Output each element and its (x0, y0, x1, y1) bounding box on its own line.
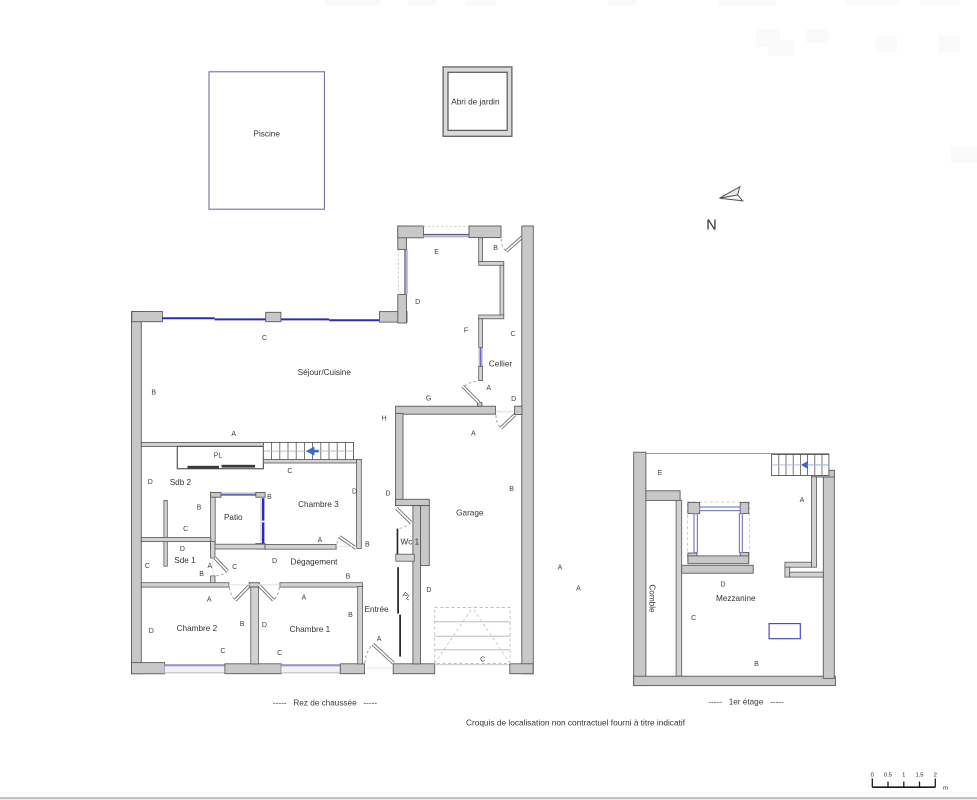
svg-text:B: B (151, 390, 156, 397)
svg-text:Sdb 2: Sdb 2 (170, 478, 192, 487)
svg-text:A: A (231, 431, 236, 438)
svg-text:Dégagement: Dégagement (291, 558, 339, 567)
svg-text:B: B (267, 494, 272, 501)
svg-text:A: A (558, 565, 563, 572)
svg-text:B: B (509, 486, 514, 493)
svg-text:D: D (511, 396, 516, 403)
svg-text:A: A (302, 595, 307, 602)
svg-text:----- 1er étage -----: ----- 1er étage ----- (708, 697, 784, 706)
svg-text:A: A (318, 537, 323, 544)
svg-text:Garage: Garage (456, 508, 484, 517)
svg-text:D: D (262, 622, 267, 629)
svg-text:N: N (706, 218, 716, 234)
svg-text:A: A (800, 497, 805, 504)
svg-text:D: D (149, 628, 154, 635)
svg-text:Chambre 1: Chambre 1 (290, 625, 331, 634)
svg-text:A: A (471, 431, 476, 438)
svg-text:C: C (232, 564, 237, 571)
svg-text:C: C (287, 468, 292, 475)
svg-text:Wc 1: Wc 1 (400, 537, 419, 546)
svg-text:----- Rez de chaussée ----: ----- Rez de chaussée ----- (273, 698, 377, 707)
svg-text:D: D (720, 582, 725, 589)
svg-text:E: E (434, 249, 439, 256)
svg-text:A: A (207, 563, 212, 570)
svg-text:B: B (754, 661, 759, 668)
svg-text:Séjour/Cuisine: Séjour/Cuisine (298, 368, 352, 377)
svg-text:Chambre 2: Chambre 2 (177, 624, 218, 633)
svg-text:E: E (658, 470, 663, 477)
svg-text:0: 0 (871, 773, 874, 779)
svg-text:C: C (510, 331, 515, 338)
svg-text:2: 2 (934, 773, 937, 779)
svg-text:A: A (207, 596, 212, 603)
svg-text:Patio: Patio (224, 513, 243, 522)
svg-text:Entrée: Entrée (364, 605, 389, 614)
svg-text:D: D (385, 491, 390, 498)
svg-text:B: B (348, 612, 353, 619)
svg-text:C: C (220, 648, 225, 655)
svg-text:A: A (486, 385, 491, 392)
svg-text:C: C (277, 650, 282, 657)
svg-text:D: D (352, 488, 357, 495)
svg-text:C: C (183, 526, 188, 533)
svg-text:A: A (377, 636, 382, 643)
svg-text:Chambre 3: Chambre 3 (298, 500, 339, 509)
svg-text:Cellier: Cellier (489, 359, 512, 368)
svg-text:F: F (464, 328, 468, 335)
svg-text:m: m (943, 786, 948, 792)
svg-text:0.5: 0.5 (884, 773, 892, 779)
svg-text:Croquis de localisation non co: Croquis de localisation non contractuel … (466, 718, 686, 728)
svg-text:C: C (480, 657, 485, 664)
svg-text:B: B (199, 571, 204, 578)
svg-text:C: C (262, 335, 267, 342)
svg-text:C: C (145, 563, 150, 570)
svg-text:A: A (576, 586, 581, 593)
svg-text:H: H (382, 415, 387, 422)
svg-text:B: B (240, 621, 245, 628)
svg-text:D: D (426, 587, 431, 594)
svg-text:C: C (691, 615, 696, 622)
svg-text:B: B (493, 245, 498, 252)
svg-text:D: D (180, 546, 185, 553)
svg-text:B: B (197, 505, 202, 512)
svg-text:Sde 1: Sde 1 (174, 556, 196, 565)
svg-text:Piscine: Piscine (253, 130, 280, 139)
svg-text:Abri de jardin: Abri de jardin (451, 97, 500, 106)
svg-text:B: B (365, 542, 370, 549)
svg-text:B: B (346, 574, 351, 581)
svg-text:G: G (426, 396, 431, 403)
svg-text:PL: PL (214, 452, 223, 459)
svg-text:D: D (272, 558, 277, 565)
svg-text:1.5: 1.5 (915, 773, 923, 779)
svg-text:Comble: Comble (647, 584, 656, 613)
svg-text:D: D (148, 479, 153, 486)
svg-text:D: D (415, 299, 420, 306)
svg-text:1: 1 (902, 773, 905, 779)
svg-text:Mezzanine: Mezzanine (716, 594, 756, 603)
